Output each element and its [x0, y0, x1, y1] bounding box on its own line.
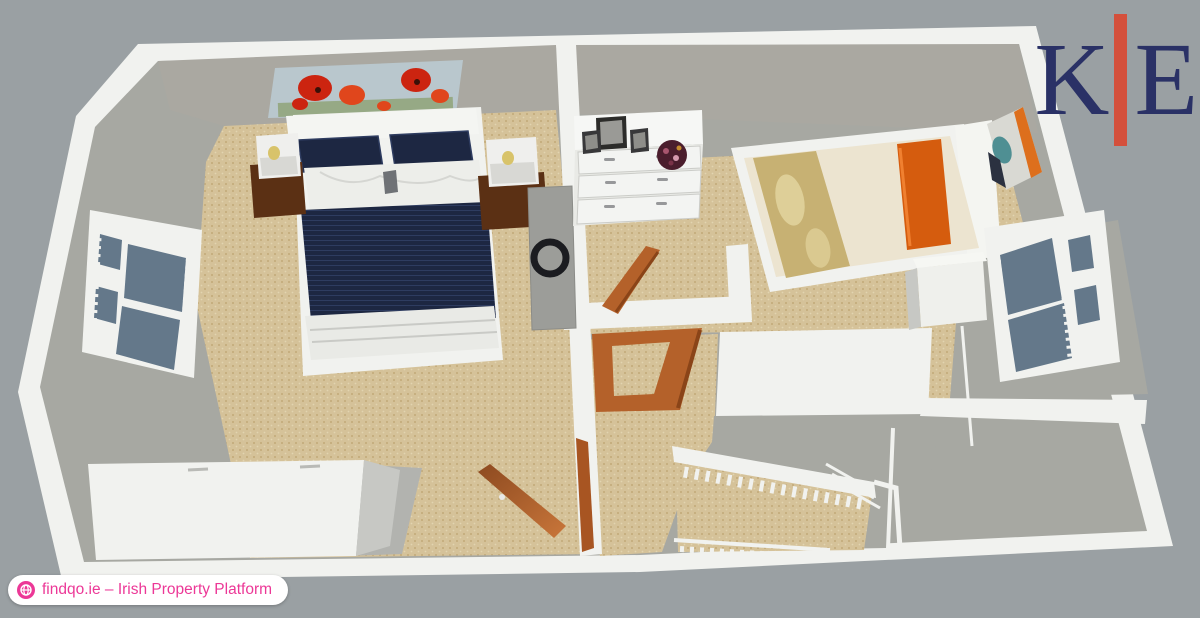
accent-fold: [383, 170, 398, 194]
window-left-wall: [82, 210, 202, 378]
dresser: [573, 110, 703, 226]
findqo-badge[interactable]: findqo.ie – Irish Property Platform: [8, 575, 288, 605]
nightstand-left: [250, 133, 306, 218]
agency-logo: K E: [1034, 14, 1196, 146]
door-jamb: [726, 244, 752, 322]
floor-plan-canvas: [0, 0, 1200, 618]
flower-bowl: [657, 140, 687, 170]
logo-letter-k: K: [1034, 28, 1107, 132]
badge-label: findqo.ie – Irish Property Platform: [42, 581, 272, 599]
floor-plan-render: K E findqo.ie – Irish Property Platform: [0, 0, 1200, 618]
lamp-left: [268, 146, 280, 160]
globe-icon: [17, 581, 35, 599]
logo-red-bar: [1114, 14, 1127, 146]
runner-rug: [528, 186, 576, 330]
fitted-wardrobe: [88, 460, 400, 560]
lamp-right: [502, 151, 514, 165]
window-right-wall: [984, 210, 1120, 382]
double-bed: [286, 107, 503, 376]
wardrobe-front: [88, 460, 364, 560]
logo-letter-e: E: [1134, 28, 1196, 132]
stairwell-slab: [716, 328, 932, 416]
bedside-unit: [905, 252, 987, 330]
door-handle: [499, 494, 505, 500]
